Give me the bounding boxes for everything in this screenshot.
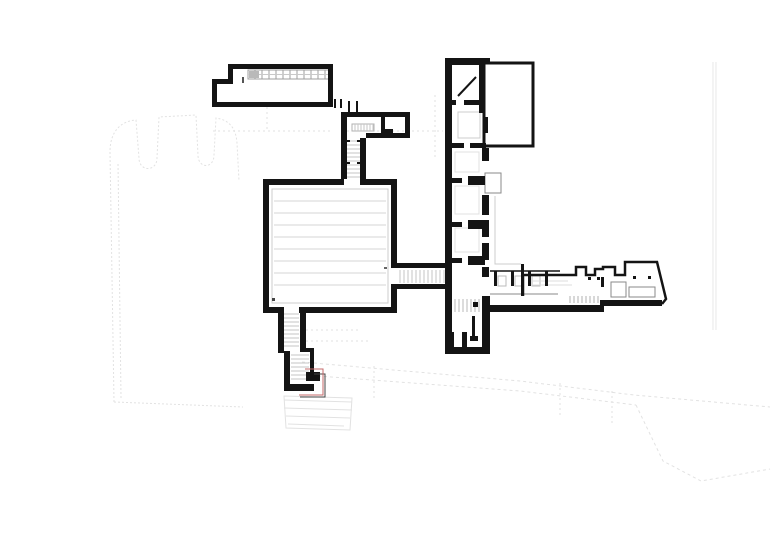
south-corridor-east-wall-upper	[300, 307, 306, 352]
east-wing-fixture-2	[629, 287, 655, 297]
east-wing-column-2	[597, 277, 600, 280]
main-hall-opening-south	[283, 307, 299, 313]
cell-wall-2	[511, 271, 514, 286]
connector-tick-1	[334, 99, 336, 108]
chapel-outline	[110, 115, 239, 402]
wing-stair-nub	[473, 302, 478, 307]
cell-wall-3	[528, 271, 531, 286]
wing-pier-5	[482, 267, 489, 277]
contour-line-2	[318, 376, 636, 405]
wing-cell-wall-2	[462, 332, 467, 350]
north-corridor-west-wall	[341, 117, 347, 183]
wing-thin-wall	[472, 316, 475, 338]
east-wing-south-wall	[482, 305, 604, 312]
wing-pier-4	[482, 243, 489, 260]
east-wing-stub	[601, 277, 604, 287]
connector-tick-2	[340, 99, 342, 108]
south-corridor-west-wall-upper	[278, 307, 284, 353]
exterior-steps-1	[284, 400, 352, 402]
wing-partition-a1	[452, 143, 464, 148]
main-hall-opening-top	[344, 179, 360, 185]
wing-elevator	[483, 117, 488, 133]
cloakroom-counter-block	[249, 71, 259, 78]
hall-door-mark	[384, 267, 387, 269]
hall-corner-mark	[272, 298, 275, 301]
north-corridor-east-wall	[360, 138, 366, 183]
chapel-inner-line	[118, 162, 121, 398]
north-stair-nub-4	[357, 162, 360, 164]
north-corridor-top-tick-1	[348, 101, 350, 112]
exterior-steps-3	[286, 416, 350, 418]
wing-partition-a2	[470, 143, 486, 148]
east-wing-column-1	[588, 277, 591, 280]
terrace-outline	[495, 196, 521, 264]
wing-room-fixture-1	[455, 152, 479, 172]
exterior-steps-4	[288, 424, 344, 426]
north-stair-nub-1	[347, 140, 350, 142]
north-corridor-partition-2	[381, 129, 393, 133]
wing-pier-2	[482, 195, 489, 215]
floor-plan-canvas	[0, 0, 780, 551]
tower-room	[484, 63, 533, 146]
east-wing-column-4	[648, 276, 651, 279]
chapel-base-line	[114, 402, 243, 407]
exterior-steps-2	[284, 408, 352, 410]
cell-fixture-1	[498, 276, 506, 286]
south-corridor-bottom-wall	[284, 384, 314, 391]
hall-inner-border	[272, 189, 388, 303]
wing-cell-wall-1	[449, 332, 454, 350]
wing-west-wall	[445, 58, 452, 354]
wing-thin-wall-cap	[470, 336, 478, 341]
north-corridor-end-wall	[405, 112, 410, 138]
wing-pier-3	[482, 220, 489, 237]
east-corridor-north-wall	[397, 263, 445, 268]
wing-lobby-fixture	[458, 112, 480, 138]
south-corridor-end-block	[306, 372, 320, 381]
wing-partition-b2	[468, 176, 485, 185]
floor-plan-page	[0, 0, 780, 551]
wing-partition-c1	[452, 222, 462, 227]
wing-balcony-outline	[485, 173, 501, 193]
east-corridor-south-wall	[397, 284, 445, 289]
main-hall-walls	[263, 179, 397, 313]
wing-room-fixture-2	[455, 186, 479, 214]
wing-room-fixture-3	[455, 228, 479, 252]
wing-stair-diagonal	[458, 77, 476, 96]
contour-line-1	[302, 362, 770, 407]
layer-walls	[212, 58, 666, 397]
north-corridor-top-wall	[341, 112, 410, 117]
north-corridor-top-tick-2	[356, 101, 358, 112]
east-wing-fixture-1	[611, 282, 626, 297]
north-corridor-south-wall	[366, 133, 405, 138]
cell-wall-4	[545, 271, 548, 286]
east-wing-column-3	[633, 276, 636, 279]
north-stair-nub-3	[347, 162, 350, 164]
wing-pier-1	[482, 148, 489, 161]
wing-room-door-gap	[456, 100, 464, 105]
north-stair-nub-2	[357, 140, 360, 142]
main-hall-opening-east	[391, 268, 397, 284]
wing-partition-b1	[452, 178, 462, 183]
east-wing-south-wall-2	[600, 300, 662, 306]
wing-partition-d1	[452, 258, 462, 263]
cloakroom-door-tick	[242, 77, 244, 83]
wing-room-divider	[479, 65, 484, 113]
cell-wall-1	[494, 271, 497, 286]
contour-line-3	[636, 405, 770, 481]
